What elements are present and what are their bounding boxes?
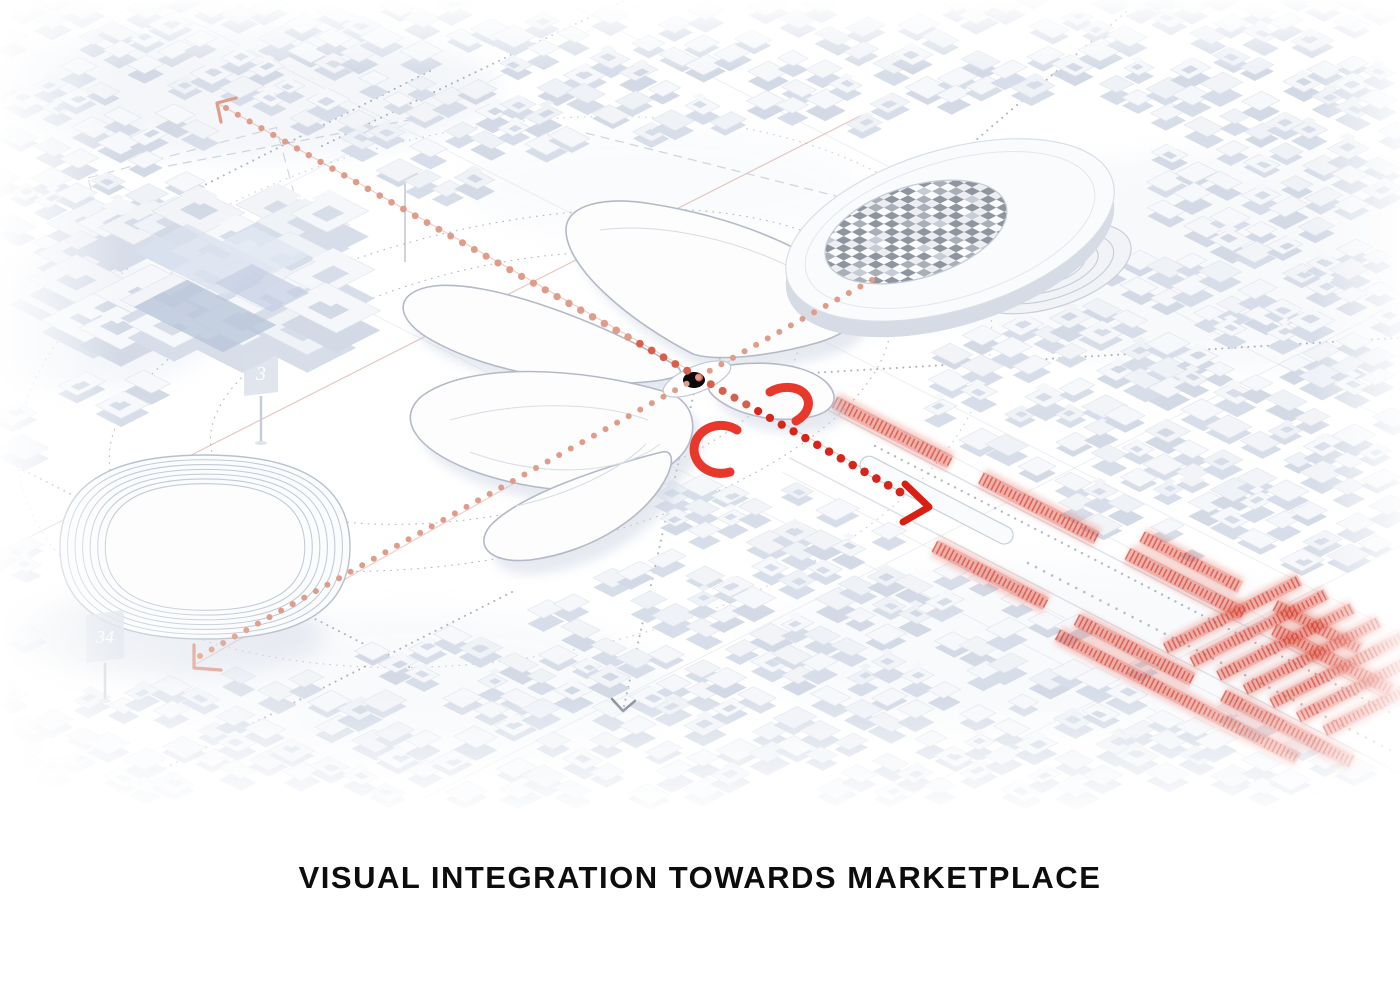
sign-label-3: 3 xyxy=(255,363,266,385)
signpost-3: 3 xyxy=(244,350,278,445)
masterplan-render: 3 34 xyxy=(0,0,1400,820)
diagram-title: VISUAL INTEGRATION TOWARDS MARKETPLACE xyxy=(0,860,1400,896)
diagram-stage: 3 34 VISUAL INTEGRATION TOWARDS MARKETPL… xyxy=(0,0,1400,986)
